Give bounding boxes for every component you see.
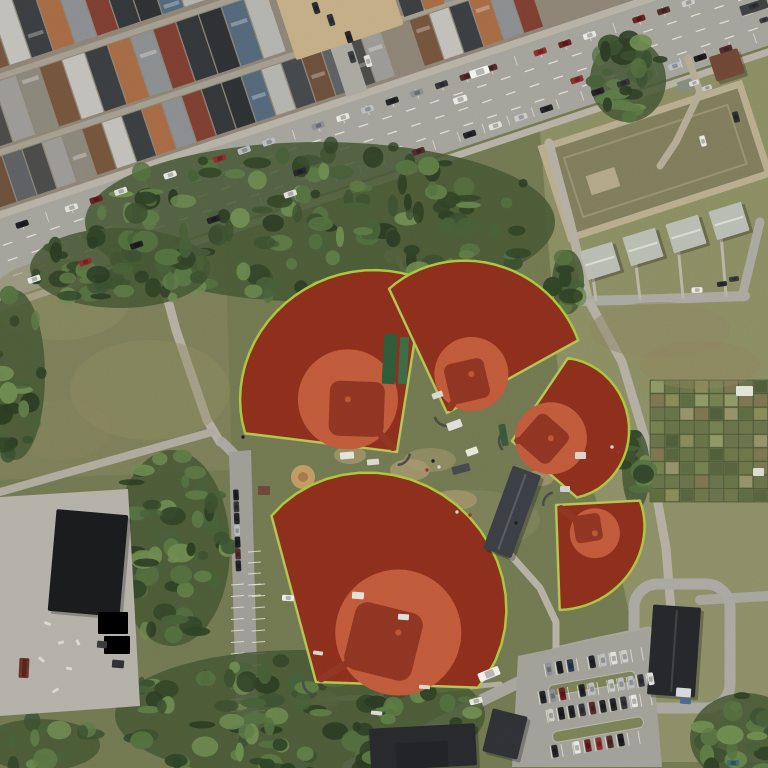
satellite-basemap <box>0 0 768 768</box>
aerial-screenshot <box>0 0 768 768</box>
image-grain <box>0 0 768 768</box>
